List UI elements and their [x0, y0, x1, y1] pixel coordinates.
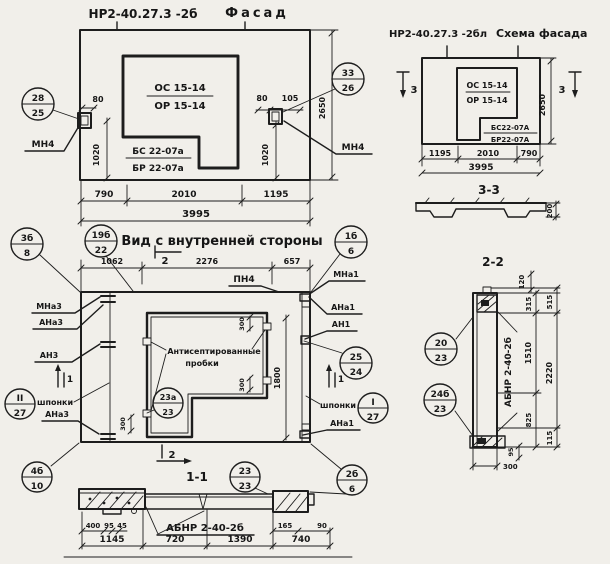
section-arrow: [400, 90, 406, 98]
dim-line-1800: [283, 315, 289, 441]
section-mark-3-left: [397, 72, 409, 90]
panel-code-rotated: АБНР 2-40-2б: [503, 337, 514, 407]
title-ticks: [117, 22, 245, 30]
label-leader: [303, 430, 360, 435]
dim-300: 300: [238, 317, 246, 331]
callout-num: 19б: [92, 230, 111, 241]
section-arrow: [184, 458, 192, 464]
section-mark-3-right: [569, 72, 581, 90]
dim-2220: 2220: [545, 361, 554, 384]
dim-515: 515: [546, 295, 554, 310]
dim-740: 740: [292, 535, 311, 545]
dot: [116, 497, 119, 500]
callout-den: 23: [162, 408, 173, 417]
callout-den: 23: [435, 354, 448, 364]
facade-sill-mark-bot: БР 22-07а: [132, 164, 183, 174]
section-mark-3-left-label: 3: [411, 85, 418, 96]
dim-1062: 1062: [101, 257, 123, 266]
dim-790: 790: [95, 190, 114, 200]
section-mark-1-left-label: 1: [67, 375, 73, 385]
callout-num: 3б: [21, 233, 34, 244]
dim-1195: 1195: [429, 149, 452, 158]
callout-leader: [455, 411, 473, 436]
label-an1: АН1: [332, 320, 351, 329]
dim-825: 825: [525, 413, 533, 428]
schema-code: НР2-40.27.3 -2бл: [389, 28, 487, 40]
dim-1020-right: 1020: [261, 143, 270, 166]
label-shponki-right: шпонки: [320, 401, 356, 410]
section-3-3-label: 3-3: [478, 183, 500, 197]
left-block-hatch: [79, 492, 145, 508]
callout-num: I: [371, 398, 374, 408]
panel-strip-details: [145, 494, 273, 509]
anchor-mark-left-inner: [81, 116, 88, 125]
dim-line-120: [528, 271, 534, 293]
dim-2010: 2010: [477, 149, 500, 158]
note-line1: Антисептированные: [167, 347, 261, 356]
callout-num: II: [17, 394, 24, 404]
callout-num: 28: [32, 94, 45, 104]
label-ana3-lower: АНа3: [45, 410, 69, 419]
title-ticks: [447, 46, 518, 58]
section-2-2-label: 2-2: [482, 255, 504, 269]
dot: [128, 502, 131, 505]
dim-300: 300: [119, 417, 127, 431]
label-mna1: МНа1: [333, 270, 359, 279]
plug: [143, 338, 151, 345]
dim-1020-left: 1020: [92, 143, 101, 166]
dim-720: 720: [166, 535, 185, 545]
section-arrow: [326, 364, 332, 371]
dim-1510: 1510: [524, 341, 533, 364]
dim-line-inner: [533, 290, 539, 450]
callout-den: 23: [434, 405, 447, 415]
dim-1195: 1195: [263, 190, 288, 200]
dim-line-300-b: [247, 375, 253, 393]
callout-leader: [53, 110, 79, 119]
callout-num: 20: [435, 339, 448, 349]
facade-sill-mark-top: БС 22-07а: [132, 147, 183, 157]
panel-drawing-svg: НР2-40.27.3 -2б Фасад ОС 15-14 ОР 15-14 …: [0, 0, 610, 564]
right-anchor-top-inner: [302, 301, 310, 307]
callout-den: 27: [367, 413, 380, 423]
label-ana1: АНа1: [331, 303, 355, 312]
section-arrow: [55, 364, 61, 371]
callout-num: 2б: [346, 469, 359, 480]
dim-790: 790: [521, 149, 538, 158]
callout-num: 23а: [160, 393, 177, 402]
label-leader: [74, 383, 109, 402]
dim-165: 165: [278, 522, 293, 530]
dim-200: 200: [546, 204, 554, 219]
anchor-label-mn4-right: МН4: [342, 143, 365, 153]
callout-den: 10: [31, 482, 44, 492]
dim-120: 120: [518, 275, 526, 290]
dim-1145: 1145: [99, 535, 124, 545]
dim-2650: 2650: [538, 93, 547, 116]
dim-2650: 2650: [318, 96, 327, 119]
callout-den: 6: [349, 485, 355, 495]
callout-den: 6: [348, 247, 354, 257]
dim-80-left: 80: [92, 95, 104, 104]
section-arrow: [572, 90, 578, 98]
label-leader: [305, 331, 357, 339]
dim-3995: 3995: [468, 163, 493, 173]
section-mark-2-top-label: 2: [162, 256, 169, 267]
label-an3: АН3: [40, 351, 58, 360]
callout-den: 24: [350, 368, 363, 378]
label-shponki-left: шпонки: [37, 398, 73, 407]
callout-den: 26: [342, 84, 355, 94]
dim-line-1020-right: [273, 122, 279, 181]
section-3-3-profile: [416, 203, 546, 217]
dim-2276: 2276: [196, 257, 219, 266]
callout-den: 25: [32, 109, 45, 119]
plug: [263, 323, 271, 330]
dim-300: 300: [238, 378, 246, 392]
section-1-1-label: 1-1: [186, 470, 208, 484]
panel-section-strip: [145, 494, 273, 509]
dim-3995: 3995: [182, 209, 210, 220]
schema-sill-mark-top: БС22-07А: [491, 124, 530, 132]
section-mark-2-bottom-label: 2: [169, 450, 176, 461]
schema-window-mark-top: ОС 15-14: [466, 81, 507, 90]
callout-num: 1б: [345, 231, 358, 242]
dim-1390: 1390: [227, 535, 252, 545]
facade-title: Фасад: [225, 6, 289, 21]
plug: [263, 377, 271, 384]
section-1-1: 1-1 23 23 АБНР 2-40-2б 400 95 45 165 90 …: [64, 462, 352, 557]
dim-105: 105: [282, 94, 299, 103]
right-wall-block: [273, 491, 308, 512]
facade-schema-view: НР2-40.27.3 -2бл Схема фасада ОС 15-14 О…: [389, 27, 587, 220]
dim-115: 115: [546, 431, 554, 446]
dim-657: 657: [284, 257, 301, 266]
plug: [143, 410, 151, 417]
section-mark-1-left: [58, 369, 64, 387]
left-anchor-dashes: [101, 296, 115, 439]
dim-300: 300: [503, 463, 518, 471]
facade-view: НР2-40.27.3 -2б Фасад ОС 15-14 ОР 15-14 …: [22, 6, 372, 226]
callout-den: 8: [24, 249, 30, 259]
callout-num: 25: [350, 353, 363, 363]
dim-95: 95: [507, 447, 515, 457]
section-mark-3-right-label: 3: [559, 85, 566, 96]
dim-45: 45: [117, 522, 127, 530]
dim-line-outer: [554, 285, 560, 450]
callout-den: 22: [95, 246, 108, 256]
right-anchor-bot-inner: [302, 424, 310, 430]
dot: [103, 502, 106, 505]
callout-leader: [456, 317, 473, 339]
section-2-2: 2-2 АБНР 2-40-2б 120 315 1510 825 515 22…: [424, 255, 560, 471]
dim-315: 315: [525, 297, 533, 312]
note-line2: пробки: [185, 358, 218, 368]
facade-window-mark-top: ОС 15-14: [154, 83, 205, 94]
label-leader: [306, 396, 320, 404]
inner-view: Вид с внутренней стороны 3б 8 19б 22 1б …: [5, 225, 388, 495]
label-leader: [42, 421, 99, 434]
callout-num: 24б: [431, 389, 450, 400]
schema-title: Схема фасада: [496, 27, 587, 40]
dim-ticks: [79, 105, 97, 111]
anchor-mark-right-inner: [272, 112, 279, 121]
dim-80-right: 80: [256, 94, 268, 103]
dim-1800: 1800: [273, 366, 282, 389]
anchor-core: [481, 300, 489, 306]
callout-divider-leader: [311, 242, 367, 292]
anchor-mark-right: [269, 109, 282, 124]
facade-code: НР2-40.27.3 -2б: [89, 7, 198, 21]
dim-line-300-c: [128, 414, 134, 434]
dim-2010: 2010: [171, 190, 196, 200]
label-mna3: МНа3: [36, 302, 62, 311]
right-block-hatch: [276, 493, 307, 511]
label-ana1-lower: АНа1: [330, 419, 354, 428]
dim-90: 90: [317, 522, 327, 530]
callout-den: 27: [14, 409, 27, 419]
callout-num: 23: [239, 467, 252, 477]
base-core: [477, 438, 486, 444]
label-leader: [311, 281, 365, 293]
callout-num: 4б: [31, 466, 44, 477]
callout-den: 23: [239, 482, 252, 492]
dim-400: 400: [86, 522, 101, 530]
label-ana3: АНа3: [39, 318, 63, 327]
label-pn4: ПН4: [233, 275, 254, 285]
facade-window-mark-bot: ОР 15-14: [154, 101, 205, 112]
anchor-label-mn4-left: МН4: [32, 140, 55, 150]
dot: [89, 498, 92, 501]
dim-line-1020-left: [104, 118, 110, 181]
drawing-canvas: НР2-40.27.3 -2б Фасад ОС 15-14 ОР 15-14 …: [0, 0, 610, 564]
section-mark-1-right-label: 1: [338, 375, 344, 385]
callout-num: 33: [342, 69, 355, 79]
inner-view-title: Вид с внутренней стороны: [121, 234, 322, 249]
dim-line-300: [470, 449, 500, 470]
schema-sill-mark-bot: БР22-07А: [491, 136, 530, 144]
section-mark-1-right: [329, 369, 335, 387]
right-anchor-top: [300, 294, 310, 301]
dim-line-95: [516, 443, 522, 461]
callout-divider-leader: [11, 244, 80, 292]
schema-window-mark-bot: ОР 15-14: [466, 96, 507, 105]
